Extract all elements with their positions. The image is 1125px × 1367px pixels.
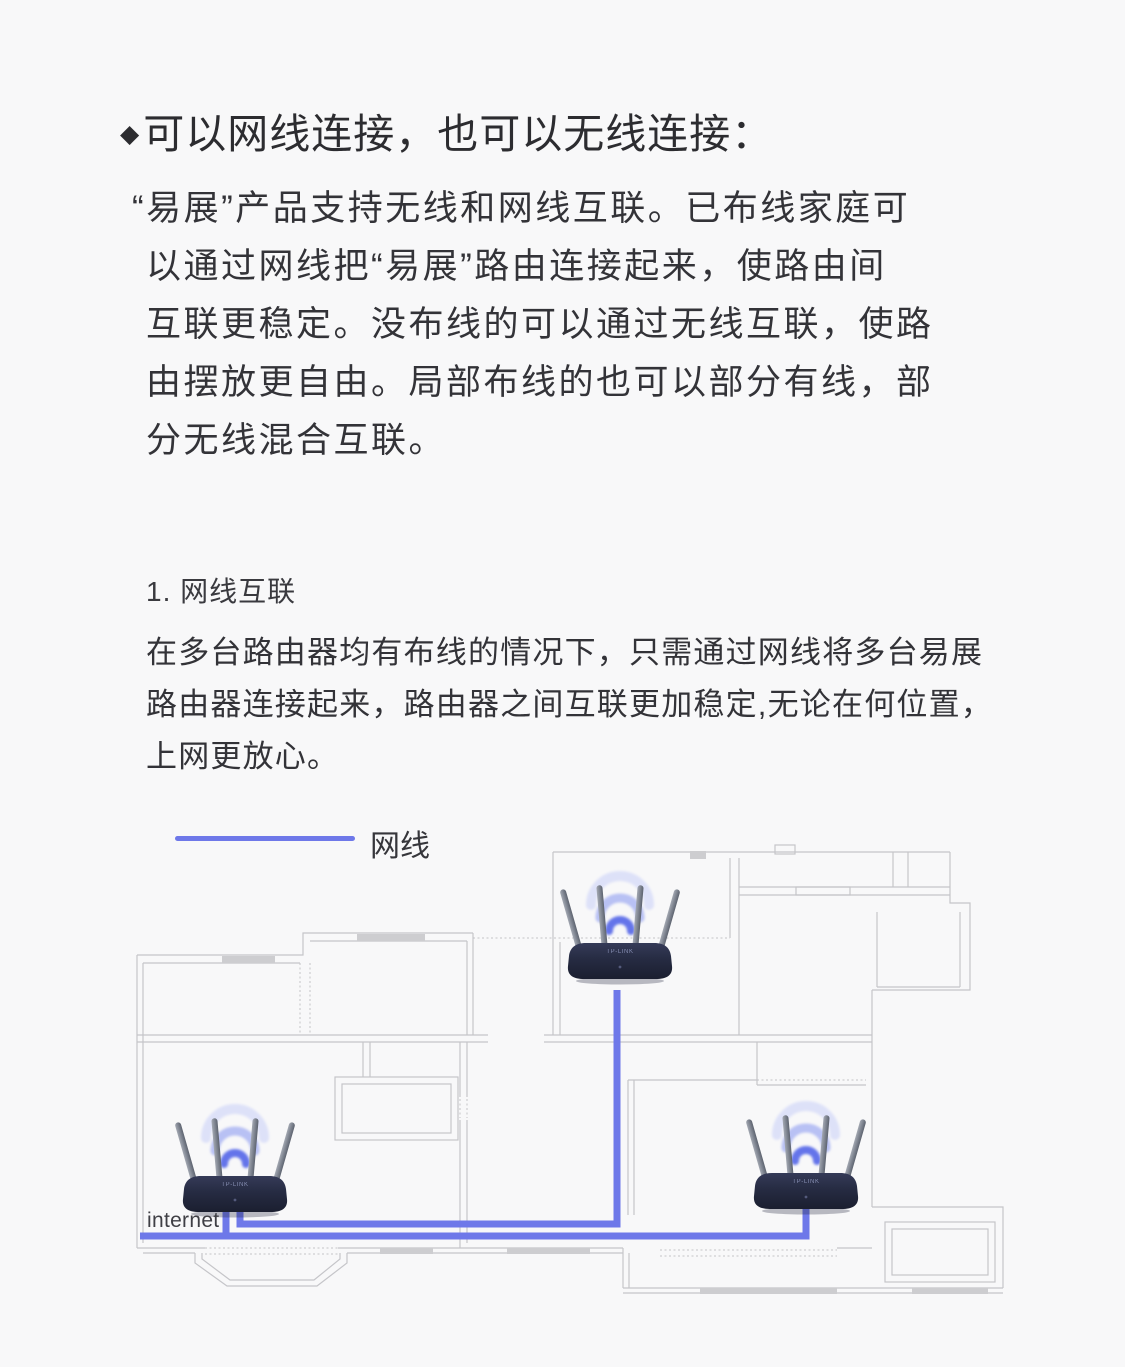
page: ◆可以网线连接，也可以无线连接： “易展”产品支持无线和网线互联。已布线家庭可 … xyxy=(0,0,1125,1367)
page-title-text: 可以网线连接，也可以无线连接： xyxy=(143,111,773,157)
internet-label: internet xyxy=(147,1209,219,1233)
intro-line: 分无线混合互联。 xyxy=(146,412,934,470)
intro-line: “易展”产品支持无线和网线互联。已布线家庭可 xyxy=(146,180,934,238)
intro-paragraph: “易展”产品支持无线和网线互联。已布线家庭可 以通过网线把“易展”路由连接起来，… xyxy=(146,180,934,470)
page-title: ◆可以网线连接，也可以无线连接： xyxy=(120,100,773,160)
router-bottom-left xyxy=(174,1109,295,1218)
intro-line: 互联更稳定。没布线的可以通过无线互联，使路 xyxy=(146,296,934,354)
section-line: 在多台路由器均有布线的情况下，只需通过网线将多台易展 xyxy=(146,627,993,679)
router-bottom-right xyxy=(745,1106,866,1215)
section-paragraph: 在多台路由器均有布线的情况下，只需通过网线将多台易展 路由器连接起来，路由器之间… xyxy=(146,627,993,783)
floorplan-diagram: TP-LINK xyxy=(0,840,1125,1367)
section-line: 路由器连接起来，路由器之间互联更加稳定,无论在何位置， xyxy=(146,679,993,731)
intro-line: 由摆放更自由。局部布线的也可以部分有线，部 xyxy=(146,354,934,412)
router-top xyxy=(559,876,680,985)
section-line: 上网更放心。 xyxy=(146,731,993,783)
diamond-bullet-icon: ◆ xyxy=(120,120,140,148)
intro-line: 以通过网线把“易展”路由连接起来，使路由间 xyxy=(146,238,934,296)
section-title: 1. 网线互联 xyxy=(146,570,296,610)
